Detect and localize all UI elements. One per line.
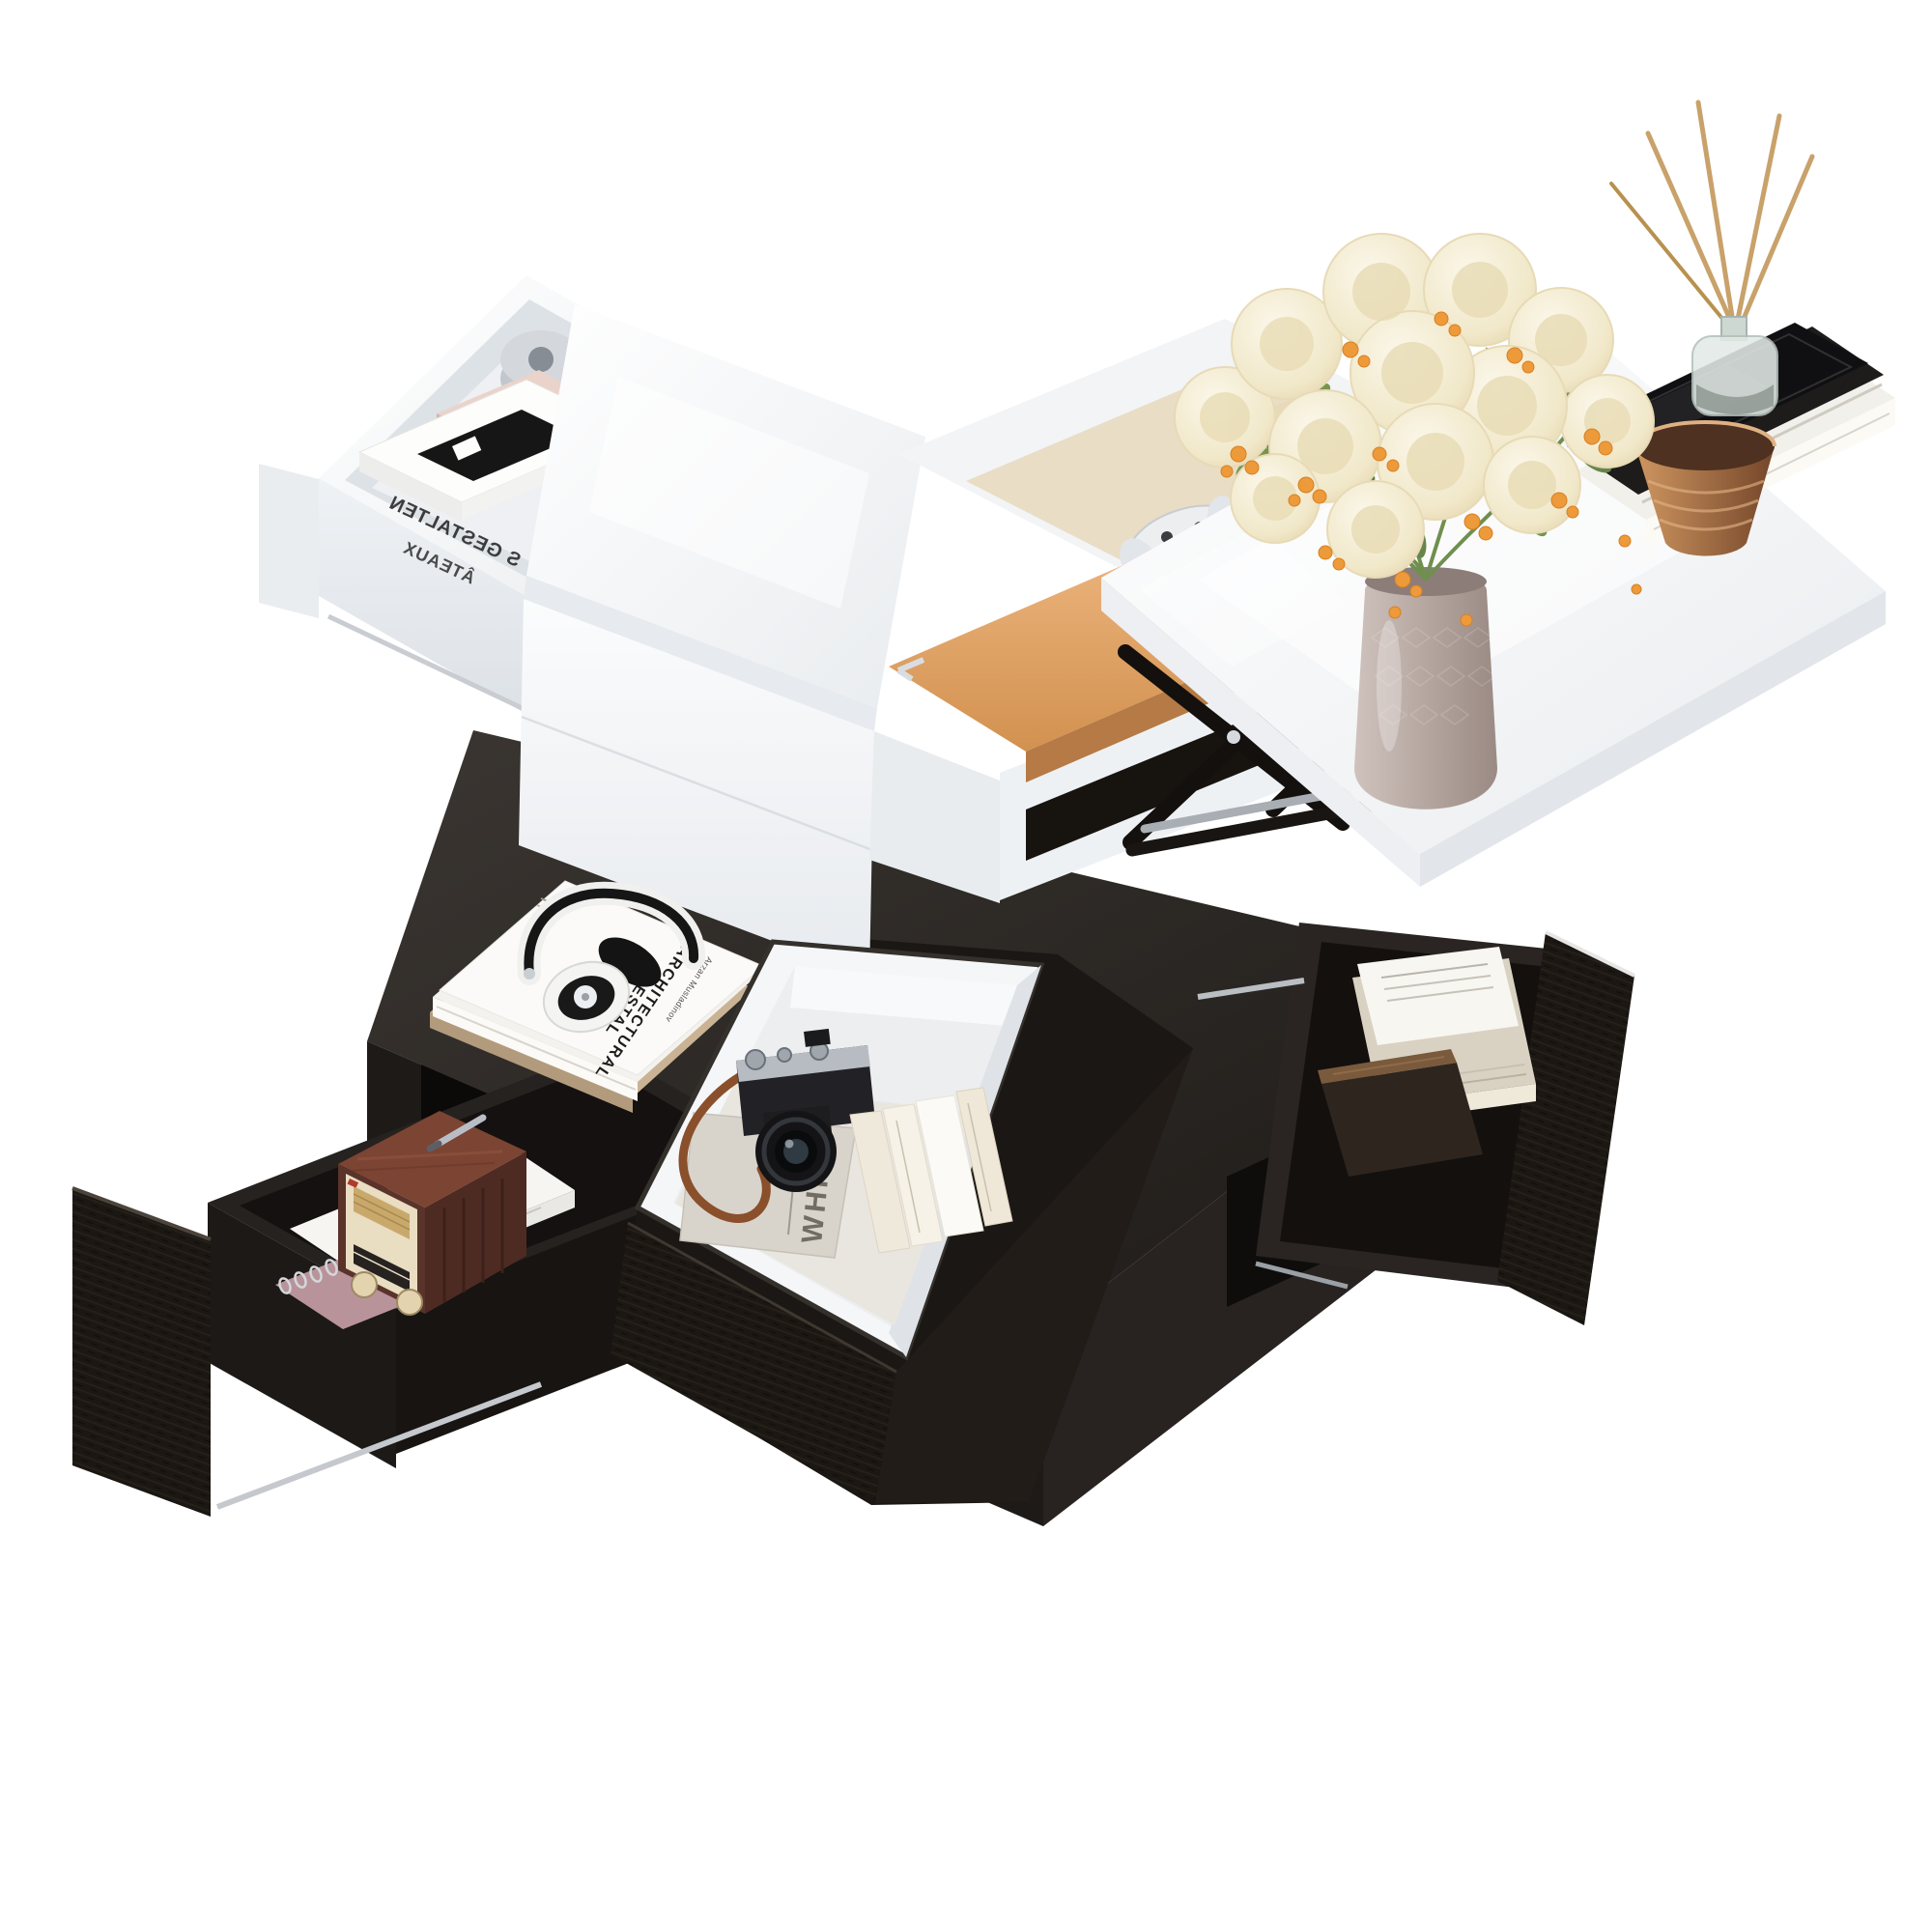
product-photo-coffee-table: S GESTALTEN ÂTEAUX ARCHITECTURAL GESTAL … xyxy=(0,0,1932,1932)
headphones-hinge xyxy=(524,968,535,980)
scene-canvas: S GESTALTEN ÂTEAUX ARCHITECTURAL GESTAL … xyxy=(0,0,1932,1932)
left-drawer-front-panel xyxy=(72,1188,211,1517)
radio-knob-right xyxy=(397,1290,422,1315)
radio-knob-left xyxy=(352,1272,377,1297)
flower-vase xyxy=(1354,567,1497,810)
top-drawer-side-panel xyxy=(259,464,319,618)
